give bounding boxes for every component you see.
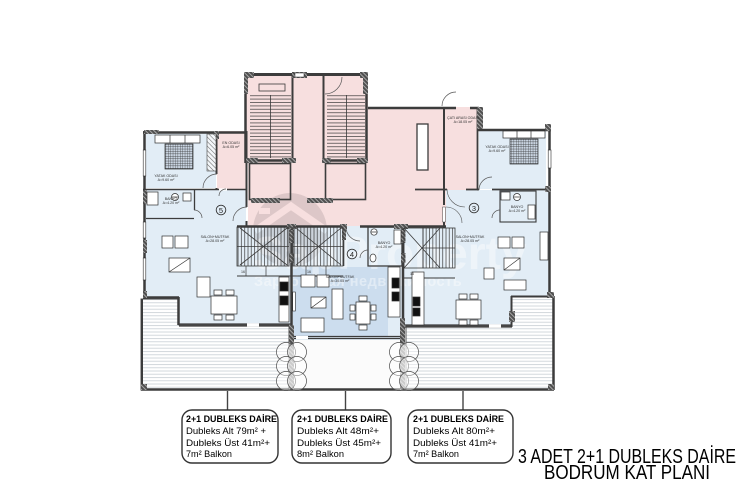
svg-text:2+1 DUBLEKS DAİRE: 2+1 DUBLEKS DAİRE xyxy=(186,414,278,425)
svg-text:A=9.60 m²: A=9.60 m² xyxy=(489,149,506,153)
svg-text:7m² Balkon: 7m² Balkon xyxy=(413,449,459,460)
svg-text:BODRUM KAT PLANI: BODRUM KAT PLANI xyxy=(544,461,710,480)
svg-text:5: 5 xyxy=(219,206,223,215)
svg-text:A=4.20 m²: A=4.20 m² xyxy=(509,209,526,213)
svg-text:8m² Balkon: 8m² Balkon xyxy=(297,449,344,460)
svg-text:Dubleks Üst 41m²+: Dubleks Üst 41m²+ xyxy=(186,438,270,449)
svg-text:16: 16 xyxy=(410,272,414,276)
svg-text:Dubleks Alt 48m²+: Dubleks Alt 48m²+ xyxy=(297,426,379,437)
svg-text:16: 16 xyxy=(241,270,245,274)
svg-text:7m² Balkon: 7m² Balkon xyxy=(186,449,232,460)
svg-text:4: 4 xyxy=(350,250,354,259)
svg-text:Dubleks Üst 45m²+: Dubleks Üst 45m²+ xyxy=(297,438,381,449)
svg-text:16: 16 xyxy=(307,270,311,274)
svg-text:A=18.05 m²: A=18.05 m² xyxy=(454,120,473,124)
svg-text:Dubleks Alt 80m²+: Dubleks Alt 80m²+ xyxy=(413,426,495,437)
svg-text:3: 3 xyxy=(472,204,476,213)
svg-text:Dubleks Üst 41m²+: Dubleks Üst 41m²+ xyxy=(413,438,497,449)
svg-text:A=6.05 m²: A=6.05 m² xyxy=(223,145,240,149)
svg-text:A=4.20 m²: A=4.20 m² xyxy=(376,245,393,249)
svg-text:A=4.20 m²: A=4.20 m² xyxy=(163,201,180,205)
svg-text:A=28.05 m²: A=28.05 m² xyxy=(461,239,480,243)
svg-text:A=30.05 m²: A=30.05 m² xyxy=(331,279,350,283)
svg-text:A=9.60 m²: A=9.60 m² xyxy=(158,178,175,182)
svg-text:A=28.05 m²: A=28.05 m² xyxy=(206,239,225,243)
svg-text:2+1 DUBLEKS DAİRE: 2+1 DUBLEKS DAİRE xyxy=(413,414,505,425)
svg-text:2+1 DUBLEKS DAİRE: 2+1 DUBLEKS DAİRE xyxy=(297,414,389,425)
svg-text:Dubleks Alt 79m² +: Dubleks Alt 79m² + xyxy=(186,426,266,437)
